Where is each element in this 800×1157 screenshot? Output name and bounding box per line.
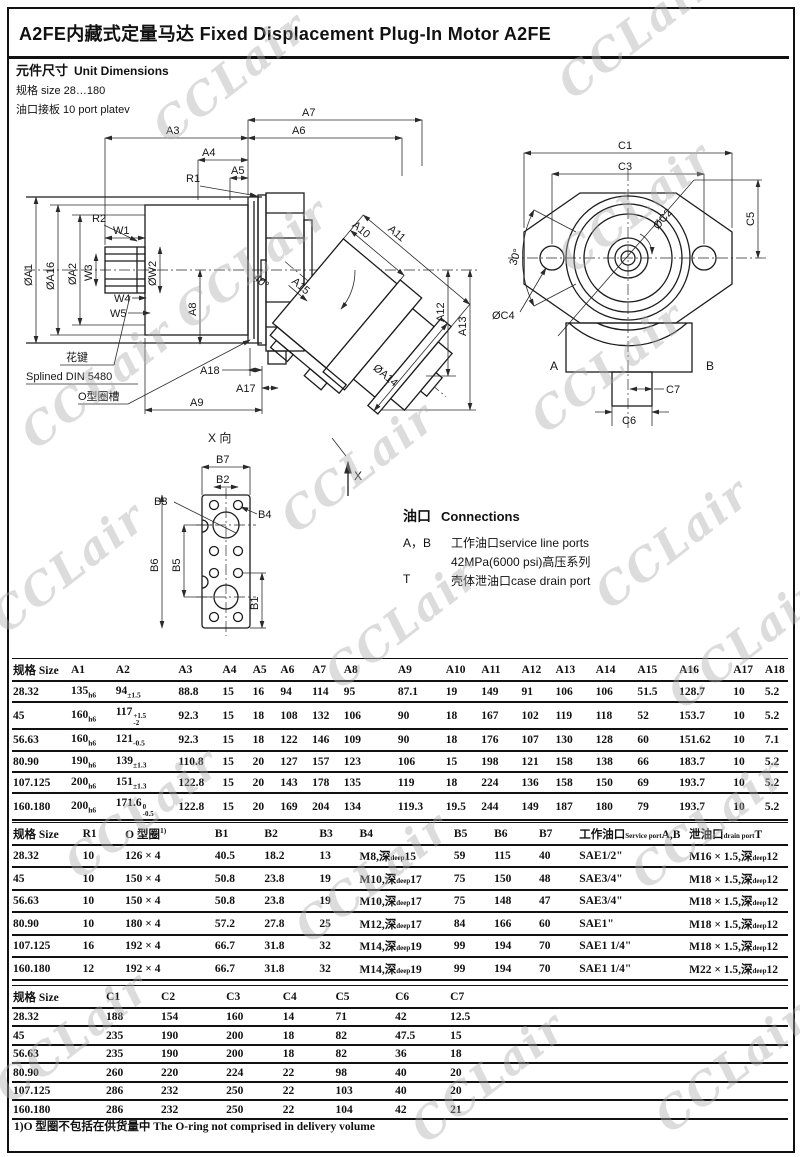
dim-label-a13: A13: [457, 316, 469, 336]
dim-label-a18: A18: [200, 365, 220, 377]
column-header: C7: [449, 986, 509, 1008]
table-cell: 95: [343, 681, 397, 702]
table-cell: 190: [160, 1045, 225, 1064]
table-cell: 178: [311, 772, 343, 793]
table-cell: 5.2: [764, 751, 788, 772]
column-header: B1: [214, 823, 264, 845]
table-cell: 75: [453, 890, 493, 913]
table-cell: 18: [445, 729, 481, 750]
table-cell: 75: [453, 867, 493, 890]
table-cell: 28.32: [12, 845, 82, 868]
table-cell: 21: [449, 1100, 509, 1119]
dim-label-a9: A9: [190, 397, 203, 409]
table-cell: 160h6: [70, 702, 115, 729]
dim-label-a17: A17: [236, 383, 256, 395]
table-cell: 14: [282, 1008, 335, 1027]
dim-label-phi-a16: ØA16: [45, 262, 57, 290]
table-cell: SAE1 1/4": [578, 957, 688, 980]
column-header: C6: [394, 986, 449, 1008]
table-cell: 7.1: [764, 729, 788, 750]
table-cell: 10: [732, 681, 764, 702]
table-cell: 160h6: [70, 729, 115, 750]
table-cell: [509, 1063, 788, 1082]
table-cell: 18: [252, 729, 280, 750]
table-cell: 28.32: [12, 681, 70, 702]
table-cell: 194: [493, 935, 538, 958]
dim-label-b6: B6: [149, 559, 161, 572]
table-cell: 107: [520, 729, 554, 750]
table-cell: 150: [595, 772, 637, 793]
connections-heading-en: Connections: [441, 509, 520, 524]
table-cell: 5.2: [764, 702, 788, 729]
table-cell: 138: [595, 751, 637, 772]
connection-row: A，B 工作油口service line ports: [403, 534, 703, 551]
dim-label-a8: A8: [187, 303, 199, 316]
table-cell: 118: [595, 702, 637, 729]
port-plate-view-drawing: X 向 B7 B2 B3 B4 B6 B5 B1: [149, 430, 271, 636]
table-cell: 47: [538, 890, 578, 913]
table-cell: 200: [225, 1026, 282, 1045]
table-cell: 92.3: [177, 702, 221, 729]
table-cell: M14,深deep19: [359, 935, 453, 958]
section-heading-en: Unit Dimensions: [74, 64, 169, 78]
table-cell: 123: [343, 751, 397, 772]
section-heading-zh: 元件尺寸: [16, 63, 68, 78]
table-cell: 82: [334, 1045, 394, 1064]
table-cell: 149: [480, 681, 520, 702]
column-header: B3: [318, 823, 358, 845]
table-cell: 204: [311, 793, 343, 820]
table-cell: 260: [105, 1063, 160, 1082]
table-cell: 71: [334, 1008, 394, 1027]
table-cell: 15: [221, 729, 251, 750]
column-header: B4: [359, 823, 453, 845]
column-header: A7: [311, 659, 343, 682]
table-row: 56.63160h6121-0.592.31518122146109901817…: [12, 729, 788, 750]
dim-label-c5: C5: [745, 212, 757, 226]
table-cell: 187: [554, 793, 594, 820]
column-header: A13: [554, 659, 594, 682]
table-row: 28.3210126 × 440.518.213M8,深deep15591154…: [12, 845, 788, 868]
table-cell: 19: [445, 681, 481, 702]
table-cell: 150: [493, 867, 538, 890]
table-cell: 122.8: [177, 793, 221, 820]
size-range-line: 规格 size 28…180: [16, 84, 169, 100]
table-cell: 25: [318, 912, 358, 935]
table-cell: 193.7: [678, 793, 732, 820]
table-cell: 18: [449, 1045, 509, 1064]
table-cell: M18 × 1.5,深deep12: [688, 935, 788, 958]
table-cell: 166: [493, 912, 538, 935]
dim-label-a10: A10: [350, 219, 373, 241]
table-cell: 22: [282, 1063, 335, 1082]
connection-description: 工作油口service line ports: [451, 534, 589, 551]
table-cell: 5.2: [764, 681, 788, 702]
column-header: 规格 Size: [12, 986, 105, 1008]
table-cell: 134: [343, 793, 397, 820]
table-cell: 157: [311, 751, 343, 772]
table-cell: 106: [595, 681, 637, 702]
table-cell: 5.2: [764, 793, 788, 820]
column-header: B6: [493, 823, 538, 845]
table-row: 107.12516192 × 466.731.832M14,深deep19991…: [12, 935, 788, 958]
column-header: B7: [538, 823, 578, 845]
column-header: A5: [252, 659, 280, 682]
table-cell: 99: [453, 957, 493, 980]
table-cell: 36: [394, 1045, 449, 1064]
dim-label-c1: C1: [618, 140, 632, 152]
port-a-label: A: [550, 359, 558, 373]
table-cell: 108: [279, 702, 311, 729]
table-cell: 13: [318, 845, 358, 868]
table-cell: M10,深deep17: [359, 890, 453, 913]
table-cell: 20: [449, 1063, 509, 1082]
table-cell: 45: [12, 1026, 105, 1045]
column-header: B5: [453, 823, 493, 845]
column-header: B2: [263, 823, 318, 845]
table-cell: 10: [732, 793, 764, 820]
table-cell: 235: [105, 1045, 160, 1064]
table-cell: 66: [636, 751, 678, 772]
table-cell: 151.62: [678, 729, 732, 750]
dim-label-a11: A11: [385, 223, 407, 244]
column-header: R1: [82, 823, 125, 845]
column-header: A2: [115, 659, 178, 682]
table-row: 160.180286232250221044221: [12, 1100, 788, 1119]
table-cell: 192 × 4: [124, 935, 214, 958]
table-cell: 126 × 4: [124, 845, 214, 868]
table-cell: 99: [453, 935, 493, 958]
dim-label-c3: C3: [618, 161, 632, 173]
table-cell: 79: [636, 793, 678, 820]
table-cell: 22: [282, 1100, 335, 1119]
table-cell: SAE1": [578, 912, 688, 935]
connection-port-label: T: [403, 572, 451, 589]
table-cell: 194: [493, 957, 538, 980]
table-cell: 143: [279, 772, 311, 793]
x-view-title: X 向: [208, 430, 231, 445]
table-row: 28.3218815416014714212.5: [12, 1008, 788, 1027]
table-cell: 121: [520, 751, 554, 772]
connection-description: 42MPa(6000 psi)高压系列: [451, 553, 590, 570]
table-cell: 122: [279, 729, 311, 750]
table-cell: 132: [311, 702, 343, 729]
table-row: 107.125286232250221034020: [12, 1082, 788, 1101]
table-cell: 192 × 4: [124, 957, 214, 980]
column-header: 规格 Size: [12, 659, 70, 682]
table-cell: 23.8: [263, 867, 318, 890]
table-cell: 286: [105, 1100, 160, 1119]
table-cell: 107.125: [12, 935, 82, 958]
table-cell: 80.90: [12, 751, 70, 772]
table-cell: 200: [225, 1045, 282, 1064]
table-cell: 20: [252, 793, 280, 820]
table-row: 28.32135h694±1.588.81516941149587.119149…: [12, 681, 788, 702]
table-cell: 169: [279, 793, 311, 820]
table-cell: 5.2: [764, 772, 788, 793]
column-header: 泄油口drain portT: [688, 823, 788, 845]
connections-heading-zh: 油口: [403, 508, 431, 524]
dim-label-r2: R2: [92, 213, 106, 225]
table-cell: 20: [252, 751, 280, 772]
table-cell: 32: [318, 957, 358, 980]
table-cell: 20: [252, 772, 280, 793]
table-cell: 15: [221, 793, 251, 820]
title-bar: A2FE内藏式定量马达 Fixed Displacement Plug-In M…: [9, 9, 789, 59]
table-cell: 106: [554, 681, 594, 702]
column-header: 规格 Size: [12, 823, 82, 845]
dim-label-a5: A5: [231, 165, 244, 177]
table-cell: 10: [732, 702, 764, 729]
table-cell: 50.8: [214, 890, 264, 913]
dimension-table-b-ports: 规格 SizeR1O 型圈1)B1B2B3B4B5B6B7工作油口Service…: [12, 822, 788, 981]
table-cell: 148: [493, 890, 538, 913]
table-header-row: 规格 SizeA1A2A3A4A5A6A7A8A9A10A11A12A13A14…: [12, 659, 788, 682]
table-cell: 153.7: [678, 702, 732, 729]
dim-label-30deg: 30°: [507, 247, 524, 267]
table-cell: 70: [538, 957, 578, 980]
table-row: 4510150 × 450.823.819M10,深deep177515048S…: [12, 867, 788, 890]
table-row: 160.180200h6171.60-0.5122.81520169204134…: [12, 793, 788, 820]
column-header: A10: [445, 659, 481, 682]
table-cell: M12,深deep17: [359, 912, 453, 935]
dim-label-b5: B5: [171, 559, 183, 572]
connections-block: 油口Connections A，B 工作油口service line ports…: [403, 506, 703, 591]
table-cell: 10: [82, 912, 125, 935]
table-cell: 19: [318, 890, 358, 913]
connection-port-label: [403, 553, 451, 570]
table-cell: M14,深deep19: [359, 957, 453, 980]
dim-label-a7: A7: [302, 108, 315, 119]
table-row: 56.6323519020018823618: [12, 1045, 788, 1064]
dim-label-a12: A12: [435, 302, 447, 322]
table-cell: 50.8: [214, 867, 264, 890]
table-cell: 130: [554, 729, 594, 750]
table-cell: M10,深deep17: [359, 867, 453, 890]
table-cell: 109: [343, 729, 397, 750]
table-cell: 28.32: [12, 1008, 105, 1027]
table-row: 160.18012192 × 466.731.832M14,深deep19991…: [12, 957, 788, 980]
column-header: C2: [160, 986, 225, 1008]
table-cell: 12: [82, 957, 125, 980]
column-header: C4: [282, 986, 335, 1008]
table-cell: 250: [225, 1100, 282, 1119]
table-cell: 84: [453, 912, 493, 935]
port-b-label: B: [706, 359, 714, 373]
table-cell: 220: [160, 1063, 225, 1082]
table-cell: 70: [538, 935, 578, 958]
label-spline-zh: 花键: [66, 350, 88, 364]
table-cell: 32: [318, 935, 358, 958]
label-spline-en: Splined DIN 5480: [26, 371, 112, 383]
table-cell: 60: [636, 729, 678, 750]
column-header: A16: [678, 659, 732, 682]
table-cell: 18: [282, 1045, 335, 1064]
table-cell: 18.2: [263, 845, 318, 868]
table-cell: 66.7: [214, 957, 264, 980]
connection-description: 壳体泄油口case drain port: [451, 572, 590, 589]
table-row: 107.125200h6151±1.3122.81520143178135119…: [12, 772, 788, 793]
table-cell: 115: [493, 845, 538, 868]
label-oring-groove: O型圈槽: [78, 389, 120, 403]
table-cell: 19.5: [445, 793, 481, 820]
table-cell: 158: [554, 772, 594, 793]
table-cell: 106: [343, 702, 397, 729]
table-cell: 52: [636, 702, 678, 729]
table-cell: 180: [595, 793, 637, 820]
connection-row: 42MPa(6000 psi)高压系列: [403, 553, 703, 570]
table-cell: 250: [225, 1082, 282, 1101]
table-cell: 91: [520, 681, 554, 702]
table-cell: 47.5: [394, 1026, 449, 1045]
table-cell: [509, 1082, 788, 1101]
table-cell: 286: [105, 1082, 160, 1101]
table-cell: M18 × 1.5,深deep12: [688, 867, 788, 890]
table-cell: 10: [732, 772, 764, 793]
table-cell: 114: [311, 681, 343, 702]
table-cell: 18: [445, 702, 481, 729]
table-cell: 10: [732, 751, 764, 772]
table-cell: M18 × 1.5,深deep12: [688, 890, 788, 913]
table-cell: 119.3: [397, 793, 445, 820]
table-cell: 90: [397, 729, 445, 750]
table-row: 56.6310150 × 450.823.819M10,深deep1775148…: [12, 890, 788, 913]
table-cell: 106: [397, 751, 445, 772]
table-cell: 224: [480, 772, 520, 793]
table-cell: 190h6: [70, 751, 115, 772]
column-header: C5: [334, 986, 394, 1008]
table-cell: 90: [397, 702, 445, 729]
table-header-row: 规格 SizeR1O 型圈1)B1B2B3B4B5B6B7工作油口Service…: [12, 823, 788, 845]
table-cell: 183.7: [678, 751, 732, 772]
table-cell: 10: [732, 729, 764, 750]
table-cell: [509, 1045, 788, 1064]
table-cell: [509, 1008, 788, 1027]
column-header: A6: [279, 659, 311, 682]
table-cell: 59: [453, 845, 493, 868]
dim-label-a3: A3: [166, 125, 179, 137]
table-cell: 18: [282, 1026, 335, 1045]
table-cell: 45: [12, 702, 70, 729]
table-cell: 139±1.3: [115, 751, 178, 772]
table-cell: M8,深deep15: [359, 845, 453, 868]
dim-label-c7: C7: [666, 384, 680, 396]
column-header: A9: [397, 659, 445, 682]
table-cell: 136: [520, 772, 554, 793]
dimension-table-a: 规格 SizeA1A2A3A4A5A6A7A8A9A10A11A12A13A14…: [12, 658, 788, 821]
table-header-row: 规格 SizeC1C2C3C4C5C6C7: [12, 986, 788, 1008]
table-cell: [509, 1026, 788, 1045]
dim-label-phi-a1: ØA1: [23, 264, 35, 286]
column-header: A17: [732, 659, 764, 682]
table-cell: 88.8: [177, 681, 221, 702]
table-cell: 107.125: [12, 772, 70, 793]
table-cell: 103: [334, 1082, 394, 1101]
column-header: 工作油口Service portA,B: [578, 823, 688, 845]
table-cell: 190: [160, 1026, 225, 1045]
column-header: A18: [764, 659, 788, 682]
table-row: 45235190200188247.515: [12, 1026, 788, 1045]
table-cell: 22: [282, 1082, 335, 1101]
table-cell: 104: [334, 1100, 394, 1119]
table-cell: 160.180: [12, 1100, 105, 1119]
column-header: C1: [105, 986, 160, 1008]
table-cell: 16: [252, 681, 280, 702]
dim-label-c6: C6: [622, 415, 636, 427]
table-cell: 80.90: [12, 912, 82, 935]
table-row: 80.90190h6139±1.3110.8152012715712310615…: [12, 751, 788, 772]
connection-port-label: A，B: [403, 534, 451, 551]
table-cell: SAE3/4": [578, 867, 688, 890]
table-cell: 119: [397, 772, 445, 793]
table-cell: 151±1.3: [115, 772, 178, 793]
column-header: A3: [177, 659, 221, 682]
table-cell: 117+1.5-2: [115, 702, 178, 729]
footnote: 1)O 型圈不包括在供货量中 The O-ring not comprised …: [14, 1118, 375, 1134]
table-cell: 171.60-0.5: [115, 793, 178, 820]
table-cell: 94: [279, 681, 311, 702]
table-cell: 57.2: [214, 912, 264, 935]
table-cell: 12.5: [449, 1008, 509, 1027]
table-cell: 16: [82, 935, 125, 958]
table-cell: 10: [82, 867, 125, 890]
table-cell: 200h6: [70, 793, 115, 820]
view-direction-x-label: X: [354, 469, 362, 483]
column-header: A1: [70, 659, 115, 682]
table-cell: 135h6: [70, 681, 115, 702]
table-cell: SAE1/2": [578, 845, 688, 868]
table-cell: 15: [221, 681, 251, 702]
table-cell: 18: [252, 702, 280, 729]
dim-label-b7: B7: [216, 454, 229, 466]
table-cell: 18: [445, 772, 481, 793]
table-cell: 20: [449, 1082, 509, 1101]
table-cell: 160.180: [12, 793, 70, 820]
column-header: A14: [595, 659, 637, 682]
table-cell: 188: [105, 1008, 160, 1027]
table-cell: 15: [221, 702, 251, 729]
table-cell: 154: [160, 1008, 225, 1027]
table-cell: 69: [636, 772, 678, 793]
table-cell: 198: [480, 751, 520, 772]
table-cell: 23.8: [263, 890, 318, 913]
dim-label-b4: B4: [258, 509, 271, 521]
table-cell: 232: [160, 1100, 225, 1119]
table-row: 45160h6117+1.5-292.315181081321069018167…: [12, 702, 788, 729]
table-cell: 87.1: [397, 681, 445, 702]
table-cell: 15: [445, 751, 481, 772]
dim-label-b2: B2: [216, 474, 229, 486]
column-header: C3: [225, 986, 282, 1008]
column-header: A4: [221, 659, 251, 682]
table-cell: 180 × 4: [124, 912, 214, 935]
table-cell: 146: [311, 729, 343, 750]
table-cell: 51.5: [636, 681, 678, 702]
table-cell: 15: [449, 1026, 509, 1045]
connection-row: T 壳体泄油口case drain port: [403, 572, 703, 589]
table-cell: M16 × 1.5,深deep12: [688, 845, 788, 868]
table-cell: 15: [221, 772, 251, 793]
table-cell: 80.90: [12, 1063, 105, 1082]
page-title: A2FE内藏式定量马达 Fixed Displacement Plug-In M…: [9, 20, 551, 46]
table-cell: 31.8: [263, 935, 318, 958]
table-cell: 102: [520, 702, 554, 729]
table-cell: 48: [538, 867, 578, 890]
table-cell: M22 × 1.5,深deep12: [688, 957, 788, 980]
table-cell: 40: [394, 1082, 449, 1101]
dim-label-b1: B1: [249, 597, 261, 610]
column-header: [509, 986, 788, 1008]
